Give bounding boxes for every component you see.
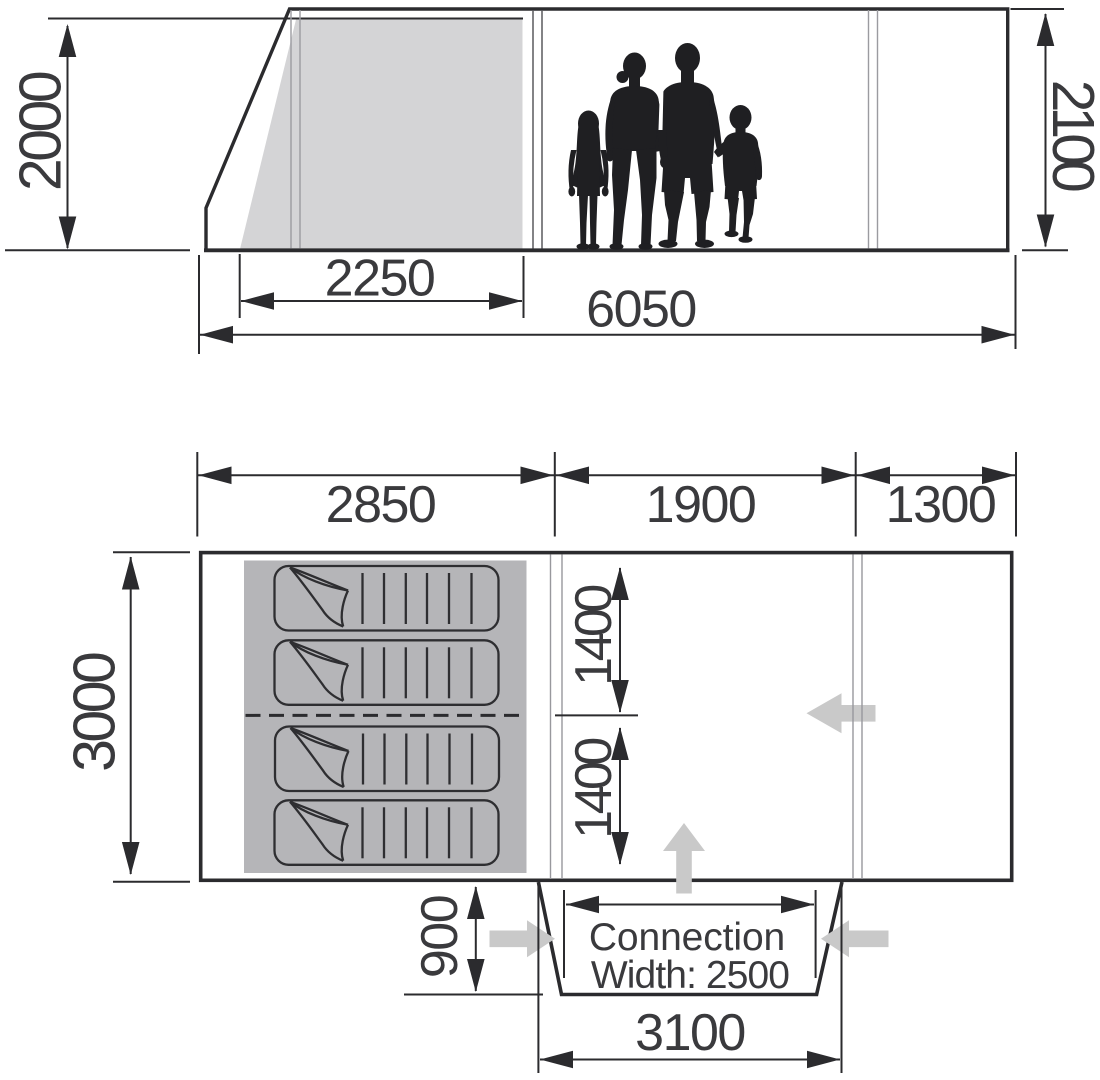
svg-text:Connection: Connection [589, 916, 785, 959]
svg-text:1900: 1900 [646, 476, 756, 534]
svg-text:2100: 2100 [1040, 80, 1100, 191]
svg-text:1400: 1400 [565, 586, 623, 686]
svg-text:6050: 6050 [586, 281, 696, 339]
svg-text:Width: 2500: Width: 2500 [591, 954, 789, 997]
svg-text:2000: 2000 [8, 72, 74, 191]
svg-text:1400: 1400 [565, 739, 623, 839]
svg-text:2850: 2850 [326, 476, 436, 534]
svg-text:900: 900 [411, 896, 469, 978]
svg-text:3000: 3000 [62, 653, 128, 772]
svg-text:2250: 2250 [325, 250, 435, 308]
svg-text:3100: 3100 [635, 1004, 745, 1062]
svg-text:1300: 1300 [886, 476, 996, 534]
